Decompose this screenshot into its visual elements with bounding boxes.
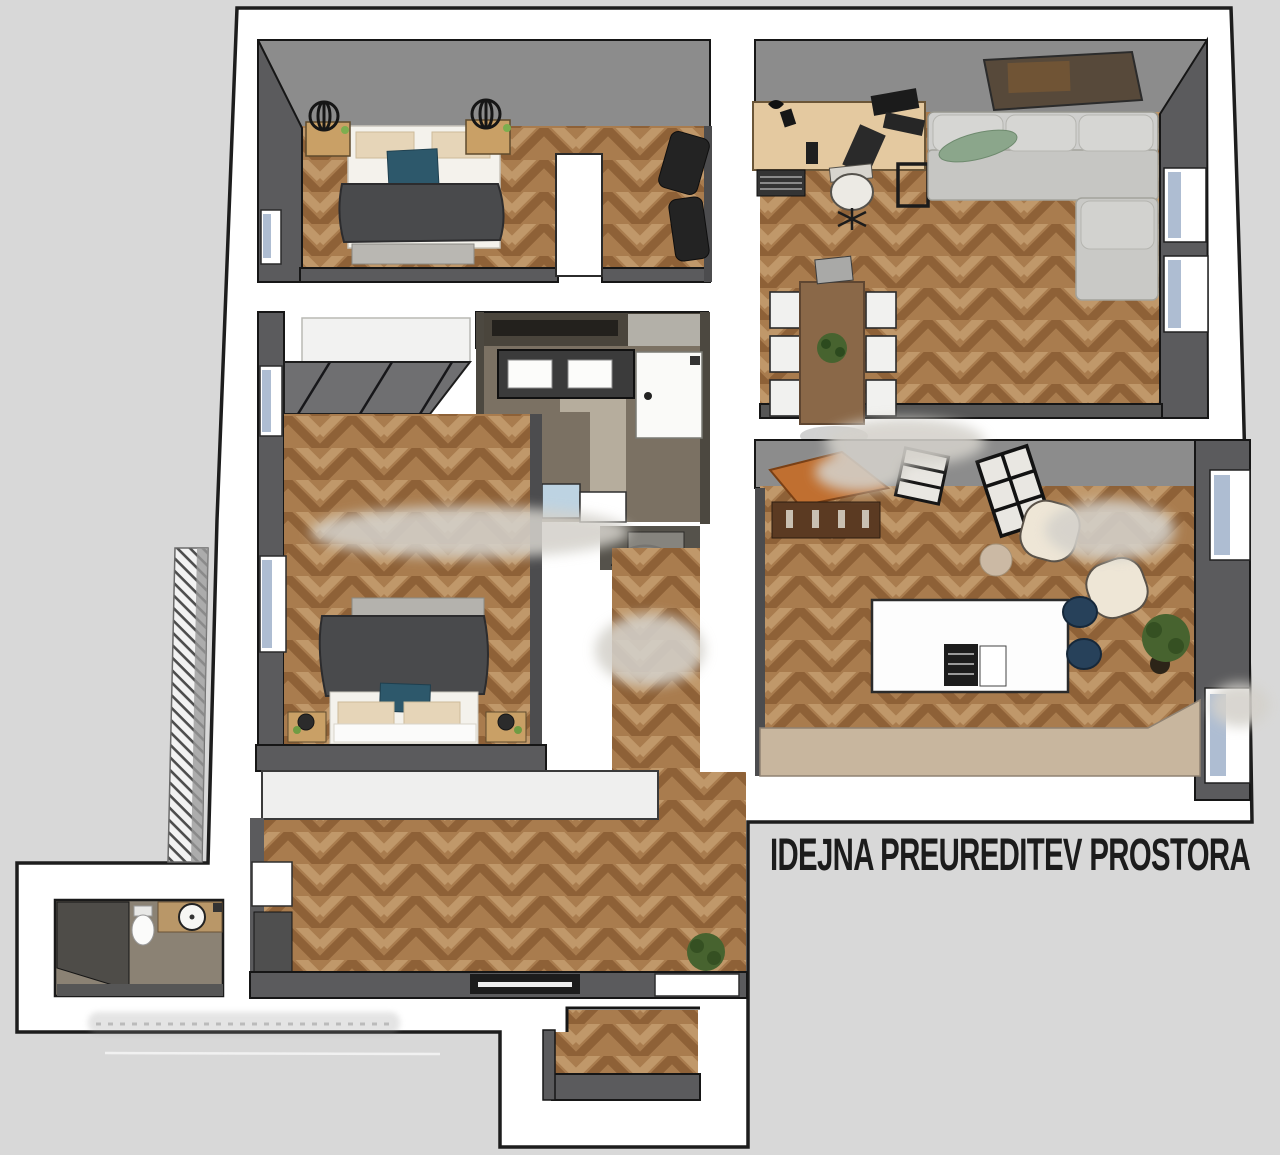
sink-right <box>568 360 612 388</box>
bed-2 <box>320 598 488 744</box>
hall-door-opening <box>655 974 739 996</box>
bedroom1-window-glass <box>263 214 271 258</box>
doormat-stripe <box>478 982 572 987</box>
bedroom2-lamp-left <box>298 714 314 730</box>
blur-smudge <box>1045 500 1175 560</box>
hall-alcove <box>254 912 292 974</box>
extension-wall-left <box>543 1030 555 1100</box>
sofa-chaise-cushion <box>1081 201 1154 249</box>
kitchen-window-1-glass <box>1214 475 1230 555</box>
bedroom2-wall-bottom <box>256 745 546 771</box>
hall-closet <box>262 771 658 819</box>
toilet <box>132 915 154 945</box>
bedroom2-window-1-glass <box>262 370 271 432</box>
bed1-teal-pillow <box>387 149 439 188</box>
washing-machine-panel <box>690 356 700 365</box>
bed1-duvet <box>339 184 503 242</box>
room-entry-extension <box>543 1008 700 1100</box>
blur-smudge <box>1210 683 1270 727</box>
bedroom2-decor-green-left <box>293 726 301 734</box>
blur-smudge <box>310 506 630 558</box>
wc-soap-dish <box>213 903 222 912</box>
room-wc <box>55 900 223 996</box>
extension-wall-bottom <box>552 1074 700 1100</box>
bedroom1-door-opening <box>556 154 602 276</box>
office-desk <box>753 102 925 170</box>
plan-title: IDEJNA PREUREDITEV PROSTORA <box>770 829 1250 880</box>
kitchen-island <box>872 600 1068 692</box>
bedroom1-wall-top <box>258 40 710 128</box>
hall-plant <box>687 933 725 971</box>
bedroom2-decor-green-right <box>514 726 522 734</box>
wc-wall-bottom <box>57 984 223 996</box>
hall-niche <box>252 862 292 906</box>
bedroom1-wall-bottom-left <box>300 268 558 282</box>
sink-left <box>508 360 552 388</box>
wc-sink-drain <box>190 915 195 920</box>
bedroom2-wall-right <box>530 414 542 758</box>
table-plant-leaf <box>821 339 831 349</box>
blur-smudge <box>595 614 705 686</box>
wall-artwork-detail <box>1007 61 1070 93</box>
round-side-table <box>980 544 1012 576</box>
bedroom1-wall-bottom-right <box>602 268 710 282</box>
bathroom-top-right-opening <box>628 314 702 348</box>
room-kitchen <box>755 440 1250 800</box>
extension-floor <box>552 1010 698 1074</box>
hall-floor <box>252 818 746 978</box>
living-window-1-glass <box>1168 172 1181 238</box>
oven-front <box>980 646 1006 686</box>
bedroom2-lamp-right <box>498 714 514 730</box>
room-bedroom-1 <box>258 40 712 282</box>
bed2-pillow-band <box>334 724 476 742</box>
bed1-foot-bench <box>352 244 474 264</box>
bedroom2-storage <box>302 318 470 362</box>
floor-plan-image: IDEJNA PREUREDITEV PROSTORA <box>0 0 1280 1155</box>
floor-plan-svg: IDEJNA PREUREDITEV PROSTORA <box>0 0 1280 1155</box>
room-living-room <box>753 40 1208 446</box>
table-plant-leaf2 <box>835 347 845 357</box>
washing-machine-dial <box>644 392 652 400</box>
hall-floor-upper <box>658 772 746 822</box>
laptop <box>815 256 853 284</box>
exterior-stairs <box>168 548 208 862</box>
living-window-2-glass <box>1168 260 1181 328</box>
decor-green-left <box>341 126 349 134</box>
decor-green-right <box>503 124 511 132</box>
blur-smudge <box>815 452 905 492</box>
bedroom2-window-2-glass <box>262 560 272 648</box>
bathroom-mirror <box>492 320 618 336</box>
